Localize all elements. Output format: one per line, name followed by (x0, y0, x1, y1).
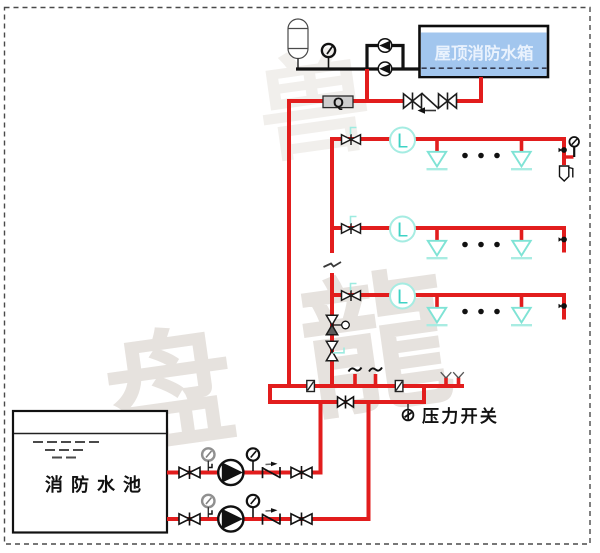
svg-text:Q: Q (333, 94, 344, 110)
svg-text:L: L (397, 287, 408, 309)
svg-text:兽: 兽 (250, 37, 378, 176)
svg-text:消防水池: 消防水池 (45, 474, 149, 495)
svg-text:L: L (397, 131, 408, 153)
svg-text:屋顶消防水箱: 屋顶消防水箱 (435, 43, 534, 63)
svg-text:L: L (397, 220, 408, 242)
svg-text:压力开关: 压力开关 (422, 406, 499, 426)
